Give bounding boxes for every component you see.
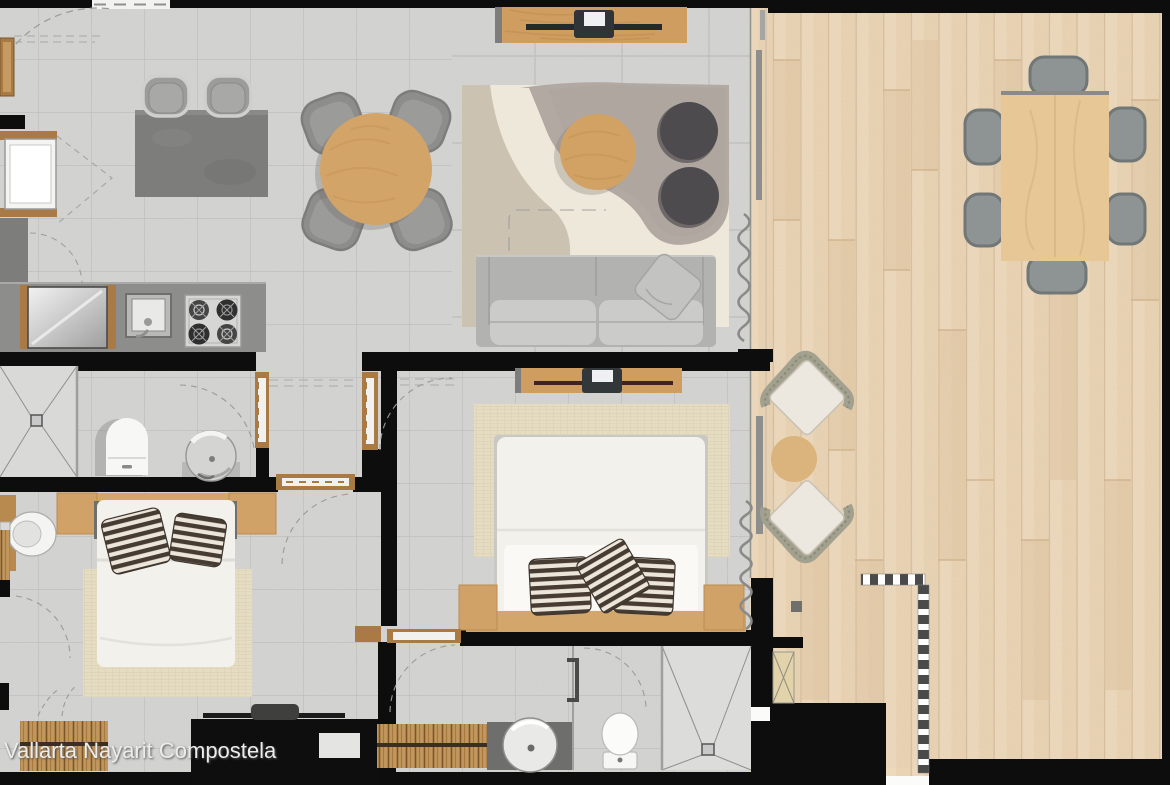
- svg-text:Vallarta Nayarit Compostela: Vallarta Nayarit Compostela: [4, 738, 277, 763]
